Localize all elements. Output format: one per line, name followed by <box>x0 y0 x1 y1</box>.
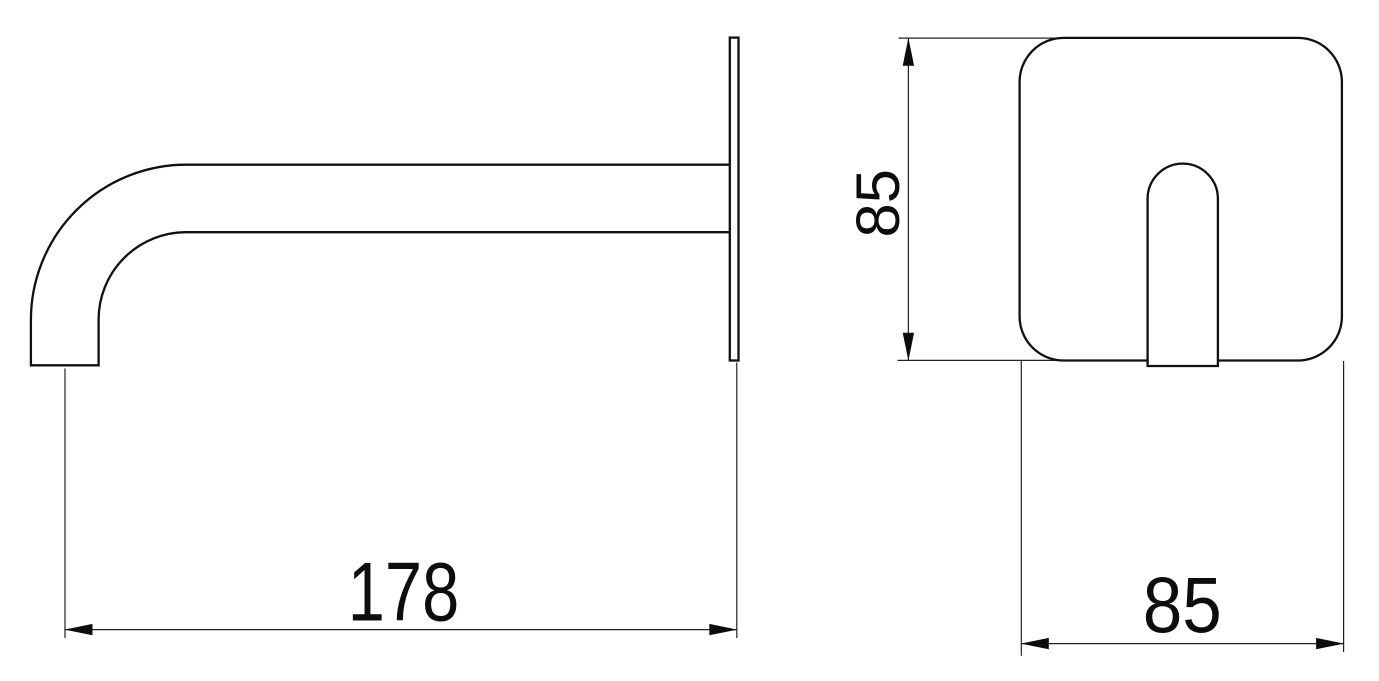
svg-text:85: 85 <box>1143 561 1222 649</box>
svg-text:85: 85 <box>844 169 913 237</box>
svg-text:178: 178 <box>348 547 459 640</box>
